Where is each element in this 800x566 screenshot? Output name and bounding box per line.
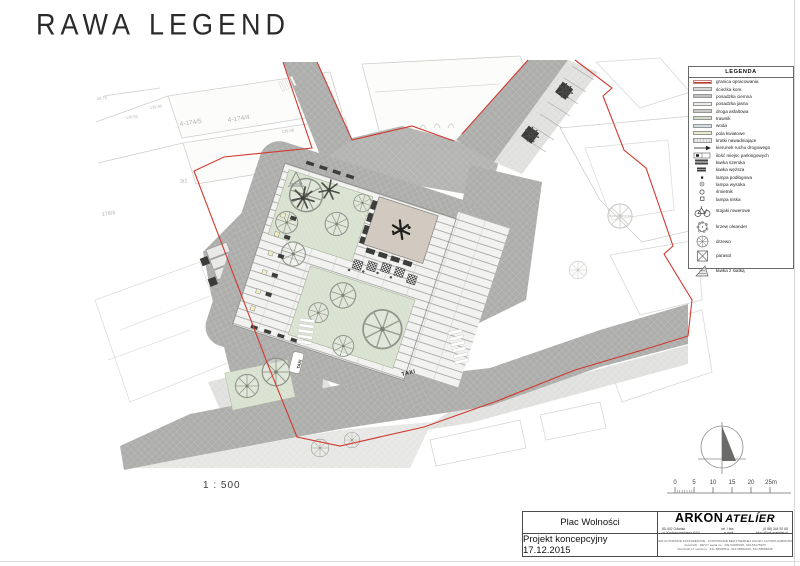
site-plan: TAXI 4-174/5 4-174/4 3/2 178/6 26,78 139… — [0, 0, 800, 566]
path-swatch — [693, 87, 712, 91]
low-lamp-icon — [693, 196, 712, 202]
narrow-bench-icon — [693, 167, 712, 172]
irrigation-grate-swatch — [693, 138, 712, 142]
firm-cell: ARKON ATELÍER 80-402 Gdańsk ul. Kochanow… — [658, 512, 792, 534]
legend-item: droga asfaltowa — [689, 107, 793, 114]
north-arrow — [698, 422, 746, 474]
svg-text:15: 15 — [729, 480, 736, 486]
light-paving-swatch — [693, 102, 712, 106]
legend-item: stojaki rowerowe — [689, 203, 793, 219]
firm-name-bold: ARKON — [675, 513, 723, 524]
legend-item: ławka z siatką — [689, 263, 793, 279]
svg-text:25m: 25m — [765, 480, 777, 486]
flower-field-swatch — [693, 131, 712, 135]
legend-item: kierunek ruchu drogowego — [689, 144, 793, 151]
oleander-shrub-icon — [693, 220, 712, 234]
legend-item: lampa wysoka — [689, 181, 793, 188]
tall-lamp-icon — [693, 181, 712, 187]
legend-item: parasol — [689, 249, 793, 263]
legend-panel: LEGENDA granica opracowania ścieżka kom.… — [688, 66, 794, 269]
project-name-cell: Plac Wolności — [523, 512, 658, 534]
bike-rack-icon — [693, 203, 712, 218]
legend-item: posadzka jasna — [689, 100, 793, 107]
firm-address: 80-402 Gdańsk ul. Kochanowskiego 64/4 te… — [662, 527, 788, 535]
trash-bin-icon — [693, 189, 712, 195]
legend-item: ławka węższa — [689, 166, 793, 173]
svg-text:3/2: 3/2 — [180, 178, 188, 185]
mesh-bench-icon — [693, 263, 712, 278]
stage-label: Projekt koncepcyjny 17.12.2015 — [523, 534, 657, 556]
asphalt-swatch — [693, 109, 712, 113]
legend-title: LEGENDA — [689, 67, 793, 78]
svg-text:26,78: 26,78 — [96, 95, 107, 101]
svg-text:178/6: 178/6 — [101, 210, 115, 218]
legend-item: pola kwiatowe — [689, 129, 793, 136]
svg-text:20: 20 — [748, 480, 755, 486]
water-swatch — [693, 124, 712, 128]
parasol-icon — [693, 250, 712, 262]
legend-item: ścieżka kom. — [689, 85, 793, 92]
title-block: Plac Wolności ARKON ATELÍER 80-402 Gdańs… — [522, 511, 793, 557]
scale-note: 1 : 500 — [203, 480, 241, 491]
legend-item: ławka szeroka — [689, 159, 793, 166]
svg-text:0: 0 — [673, 480, 677, 486]
svg-text:5: 5 — [692, 480, 696, 486]
legend-item: kratki nawadniające — [689, 137, 793, 144]
firm-logo: ARKON ATELÍER — [675, 513, 775, 525]
project-name: Plac Wolności — [560, 517, 620, 528]
legend-item: lampa niska — [689, 196, 793, 203]
stage-cell: Projekt koncepcyjny 17.12.2015 — [523, 534, 658, 556]
copyright-line: AutoCAD LT serial no.: 341-58590511, 341… — [677, 547, 772, 551]
svg-text:10: 10 — [710, 480, 717, 486]
legend-item: lampa podłogowa — [689, 173, 793, 180]
boundary-swatch — [693, 80, 712, 84]
legend-item: granica opracowania — [689, 78, 793, 85]
wide-bench-icon — [693, 159, 712, 165]
traffic-direction-icon — [693, 145, 712, 151]
copyright-cell: PRAWA AUTORSKIE ZASTRZEŻONE - KOPIOWANIE… — [658, 534, 792, 556]
legend-item: woda — [689, 122, 793, 129]
legend-item: posadzka ciemna — [689, 93, 793, 100]
firm-name-light: ATELÍER — [725, 514, 775, 525]
legend-item: krzew oleander — [689, 219, 793, 235]
legend-item: drzewo — [689, 235, 793, 249]
dark-paving-swatch — [693, 94, 712, 98]
floor-lamp-icon — [693, 175, 712, 180]
parking-count-icon — [693, 152, 712, 159]
legend-item: trawnik — [689, 115, 793, 122]
legend-item: śmietnik — [689, 188, 793, 195]
lawn-swatch — [693, 116, 712, 120]
tree-icon — [693, 235, 712, 248]
scale-bar: 0 5 10 15 20 25m — [667, 480, 791, 493]
svg-text:139,52: 139,52 — [125, 113, 139, 120]
legend-item: ilość miejsc parkingowych — [689, 151, 793, 158]
drawing-sheet: RAWALEGEND — [0, 0, 800, 566]
svg-text:139,40: 139,40 — [149, 103, 163, 110]
